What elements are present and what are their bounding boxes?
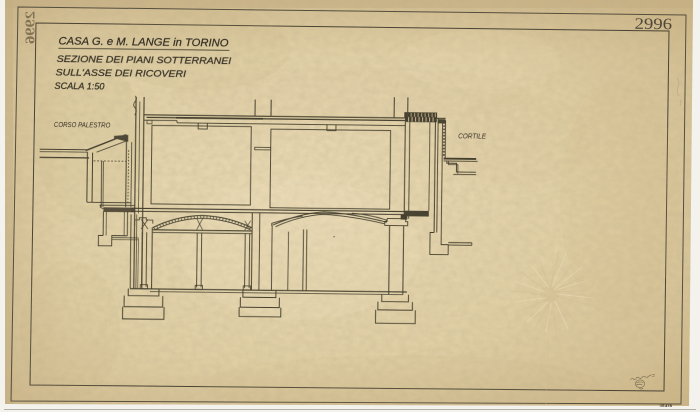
svg-text:CASA G. e M. LANGE in TORINO: CASA G. e M. LANGE in TORINO: [58, 36, 229, 50]
svg-text:SEZIONE DEI PIANI SOTTERRANEI: SEZIONE DEI PIANI SOTTERRANEI: [57, 54, 232, 66]
svg-text:CORSO PALESTRO: CORSO PALESTRO: [54, 120, 111, 130]
svg-text:SCALA 1:50: SCALA 1:50: [54, 81, 105, 92]
svg-text:SULL'ASSE DEI RICOVERI: SULL'ASSE DEI RICOVERI: [56, 68, 187, 80]
svg-text:2996: 2996: [634, 16, 672, 33]
svg-text:CORTILE: CORTILE: [458, 131, 486, 140]
svg-text:38436: 38436: [660, 403, 673, 408]
svg-text:2996: 2996: [24, 11, 39, 44]
